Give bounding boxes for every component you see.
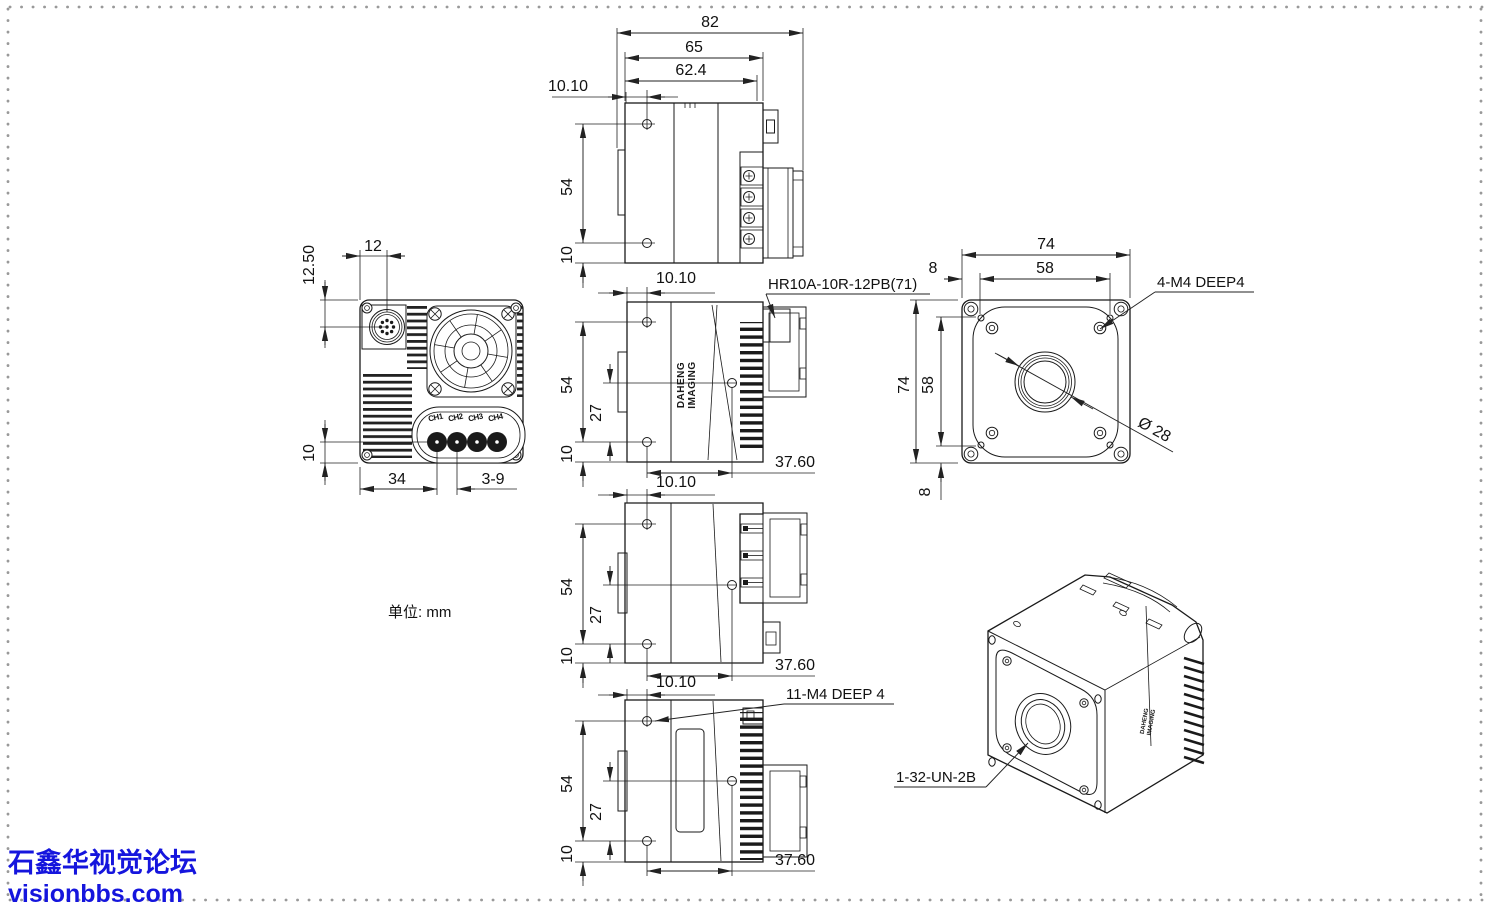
view-front: Ø 28 4-M4 DEEP4 74 58 8 74 58 bbox=[896, 236, 1254, 500]
cooling-fan bbox=[427, 306, 516, 397]
dim-text: 54 bbox=[559, 376, 576, 394]
lens-mount-bore bbox=[1015, 352, 1075, 412]
heatsink-slats-left bbox=[363, 372, 412, 458]
callout-diameter-28: Ø 28 bbox=[995, 353, 1174, 452]
dim-text: 54 bbox=[559, 578, 576, 596]
dim-text-65: 65 bbox=[685, 39, 703, 56]
lens-mount-iso bbox=[1006, 685, 1081, 764]
watermark: 石鑫华视觉论坛 visionbbs.com bbox=[7, 847, 197, 908]
dim-10-10-top: 10.10 bbox=[548, 78, 678, 130]
dim-text-12: 12 bbox=[364, 238, 382, 255]
rear-housing bbox=[763, 765, 807, 857]
iso-top-bar bbox=[1103, 573, 1205, 646]
dim-text-54: 54 bbox=[559, 178, 576, 196]
dim-12: 12 bbox=[342, 238, 405, 312]
dim-text: 74 bbox=[1037, 236, 1055, 253]
dim-27-b: 27 bbox=[588, 364, 737, 461]
dim-text: 37.60 bbox=[775, 657, 815, 674]
dim-text-10-rear: 10 bbox=[301, 444, 318, 462]
dim-10-b: 10 bbox=[559, 445, 629, 487]
dim-54-left: 54 bbox=[559, 124, 655, 243]
dim-62-4: 62.4 bbox=[625, 62, 757, 101]
dim-text: 10 bbox=[559, 845, 576, 863]
dim-text: 74 bbox=[896, 376, 913, 394]
watermark-forum-name: 石鑫华视觉论坛 bbox=[7, 847, 197, 878]
dim-text: 54 bbox=[559, 775, 576, 793]
iso-top-slots bbox=[1013, 585, 1162, 629]
view-side-top: 82 65 62.4 10.10 54 10 bbox=[548, 14, 803, 288]
dim-text: 27 bbox=[588, 404, 605, 422]
camera-dimension-drawing: 82 65 62.4 10.10 54 10 bbox=[0, 0, 1488, 909]
heatsink-slats-right bbox=[517, 306, 523, 397]
view-side-c: 10.10 54 27 10 37.60 bbox=[559, 474, 815, 688]
bottom-connector bbox=[763, 622, 780, 653]
iso-daheng-logo: DAHENG IMAGING bbox=[1140, 707, 1157, 736]
dim-text-12-50: 12.50 bbox=[301, 245, 318, 285]
engineering-drawing-page: 82 65 62.4 10.10 54 10 bbox=[0, 0, 1488, 909]
callout-4-m4: 4-M4 DEEP4 bbox=[1100, 274, 1254, 329]
dim-text: 10.10 bbox=[656, 674, 696, 691]
label-front-screws: 4-M4 DEEP4 bbox=[1157, 274, 1245, 291]
dim-text-82: 82 bbox=[701, 14, 719, 31]
dim-10-10-c: 10.10 bbox=[598, 474, 715, 530]
dim-37-60-c: 37.60 bbox=[647, 590, 815, 681]
dim-text-10-10: 10.10 bbox=[548, 78, 588, 95]
dim-10-left: 10 bbox=[559, 246, 627, 288]
dim-text: 27 bbox=[588, 606, 605, 624]
dim-text: 58 bbox=[1036, 260, 1054, 277]
daheng-imaging-logo: DAHENG IMAGING bbox=[676, 361, 698, 408]
coax-screws-side bbox=[741, 167, 763, 248]
fan-screws bbox=[429, 308, 514, 395]
dim-27-d: 27 bbox=[588, 762, 737, 860]
iso-heatsink-fins bbox=[1184, 658, 1204, 763]
dim-10-10-b: 10.10 bbox=[598, 270, 715, 328]
watermark-site-url: visionbbs.com bbox=[8, 880, 183, 908]
callout-hr10a: HR10A-10R-12PB(71) bbox=[766, 276, 930, 318]
dim-54-b: 54 bbox=[559, 322, 656, 442]
dim-54-c: 54 bbox=[559, 524, 656, 644]
label-lens-thread: 1-32-UN-2B bbox=[896, 769, 976, 786]
front-plate-screws bbox=[986, 322, 1106, 439]
dim-82: 82 bbox=[617, 14, 803, 170]
callout-11-m4: 11-M4 DEEP 4 bbox=[655, 686, 894, 721]
rear-housing bbox=[763, 307, 806, 397]
dim-text-10: 10 bbox=[559, 246, 576, 264]
dim-58-left: 58 bbox=[920, 317, 976, 446]
dim-text: 10 bbox=[559, 445, 576, 463]
view-isometric: DAHENG IMAGING 1-32-UN-2B bbox=[894, 573, 1205, 813]
dim-text-34: 34 bbox=[388, 471, 406, 488]
heatsink-fins bbox=[740, 712, 763, 860]
dim-27-c: 27 bbox=[588, 566, 737, 663]
dim-text-62-4: 62.4 bbox=[675, 62, 706, 79]
unit-note: 单位: mm bbox=[388, 604, 451, 621]
contact-prongs bbox=[741, 524, 763, 587]
dim-8-bottom: 8 bbox=[917, 463, 941, 500]
dim-text: 27 bbox=[588, 803, 605, 821]
dim-text: 10.10 bbox=[656, 474, 696, 491]
svg-text:IMAGING: IMAGING bbox=[687, 361, 698, 408]
heatsink-slats-mid bbox=[407, 305, 427, 369]
coax-channel-block: CH1 CH2 CH3 CH4 bbox=[412, 407, 525, 463]
view-side-b: DAHENG IMAGING 10.10 54 bbox=[559, 270, 930, 487]
label-hr10a-connector: HR10A-10R-12PB(71) bbox=[768, 276, 917, 293]
dim-10-c: 10 bbox=[559, 647, 629, 688]
dim-text: 10 bbox=[559, 647, 576, 665]
view-side-d: 10.10 54 27 10 37.60 11-M4 DEEP 4 bbox=[559, 674, 894, 886]
dim-58-8-top: 58 8 bbox=[929, 260, 1110, 314]
dim-text: 37.60 bbox=[775, 852, 815, 869]
dim-text: 8 bbox=[917, 487, 934, 496]
dim-text: 37.60 bbox=[775, 454, 815, 471]
rear-housing bbox=[763, 513, 807, 603]
heatsink-fins bbox=[740, 322, 763, 451]
label-side-screws: 11-M4 DEEP 4 bbox=[786, 686, 885, 703]
dim-10-d: 10 bbox=[559, 845, 629, 886]
dim-text: 10.10 bbox=[656, 270, 696, 287]
dim-text-3-9: 3-9 bbox=[481, 471, 504, 488]
dim-37-60-b: 37.60 bbox=[647, 388, 815, 478]
dim-text: 8 bbox=[929, 260, 938, 277]
view-rear: CH1 CH2 CH3 CH4 12 12.50 10 bbox=[301, 238, 525, 495]
dim-text: 58 bbox=[920, 376, 937, 394]
svg-text:DAHENG: DAHENG bbox=[676, 362, 687, 408]
